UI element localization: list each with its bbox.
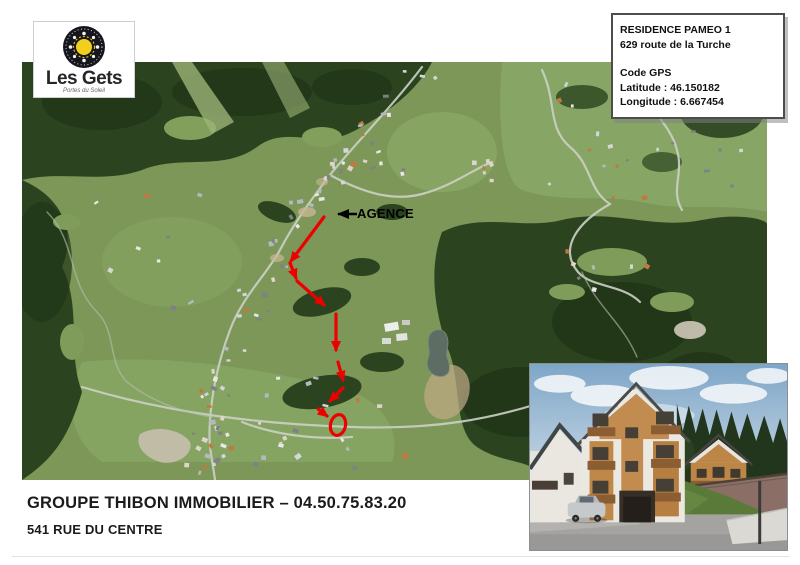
residence-info-box: RESIDENCE PAMEO 1 629 route de la Turche… — [611, 13, 785, 119]
document-page: Les Gets Portes du Soleil RESIDENCE PAME… — [0, 0, 800, 565]
agency-contact: GROUPE THIBON IMMOBILIER – 04.50.75.83.2… — [27, 494, 407, 513]
logo-tagline: Portes du Soleil — [34, 88, 134, 95]
gps-heading: Code GPS — [620, 66, 779, 81]
logo-title: Les Gets — [34, 69, 134, 88]
page-edge-line — [12, 556, 790, 557]
residence-photo — [529, 363, 788, 551]
sun-emblem-icon — [62, 25, 106, 69]
residence-name: RESIDENCE PAMEO 1 — [620, 23, 779, 38]
agency-address: 541 RUE DU CENTRE — [27, 522, 163, 537]
agence-label: AGENCE — [357, 206, 414, 221]
residence-address: 629 route de la Turche — [620, 38, 779, 53]
info-spacer — [620, 52, 779, 66]
gps-latitude: Latitude : 46.150182 — [620, 81, 779, 96]
les-gets-logo: Les Gets Portes du Soleil — [33, 21, 135, 98]
lamp-pole — [758, 481, 761, 544]
gps-longitude: Longitude : 6.667454 — [620, 95, 779, 110]
